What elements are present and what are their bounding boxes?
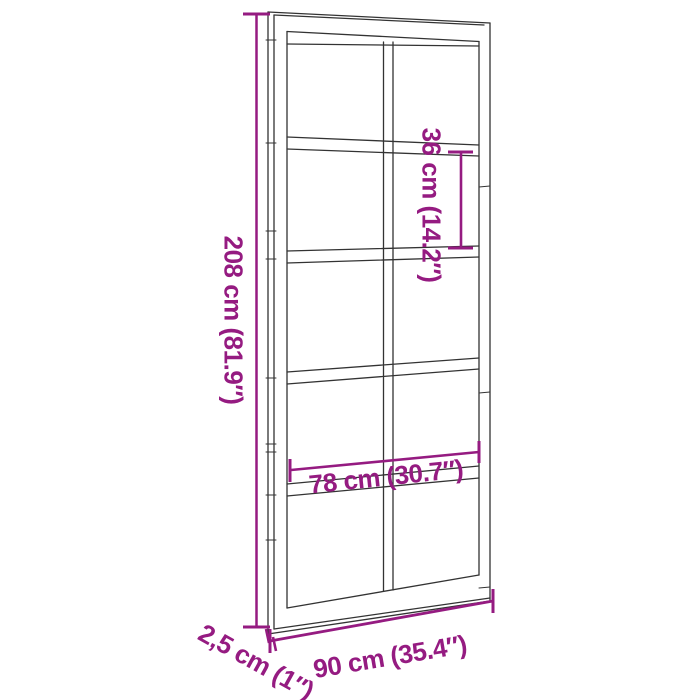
door-drawing <box>266 12 490 634</box>
door-grid <box>287 32 479 609</box>
edge-seams <box>266 40 490 588</box>
dimension-label-panel-height: 36 cm (14.2″) <box>416 128 447 283</box>
dimension-lines <box>243 14 493 653</box>
dimension-label-door-height: 208 cm (81.9″) <box>218 236 249 405</box>
door-outline <box>268 12 490 634</box>
door-line-art <box>0 0 700 700</box>
product-dimension-diagram: 208 cm (81.9″) 36 cm (14.2″) 78 cm (30.7… <box>0 0 700 700</box>
dimension-line-panel-height <box>448 152 473 248</box>
